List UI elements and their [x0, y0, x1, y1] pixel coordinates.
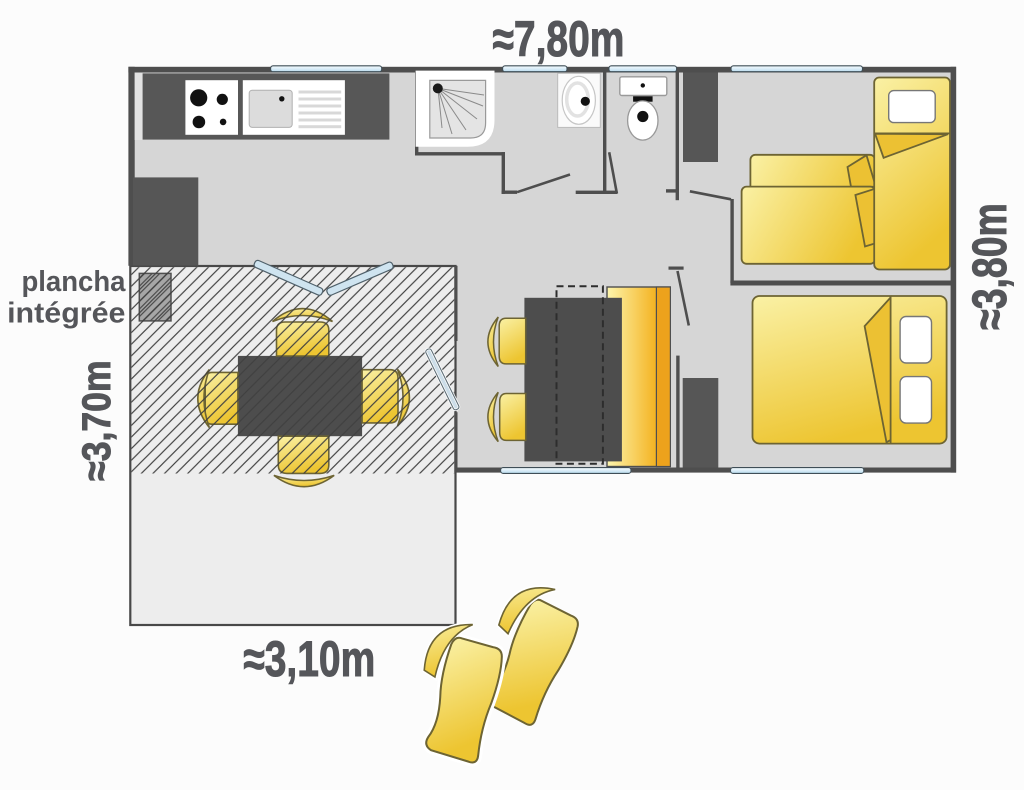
svg-text:≈3,80m: ≈3,80m — [964, 203, 1018, 330]
svg-text:≈7,80m: ≈7,80m — [493, 10, 625, 67]
svg-text:intégrée: intégrée — [7, 297, 125, 329]
svg-text:≈3,70m: ≈3,70m — [75, 360, 119, 480]
svg-text:≈3,10m: ≈3,10m — [243, 630, 375, 687]
svg-text:plancha: plancha — [21, 264, 125, 297]
